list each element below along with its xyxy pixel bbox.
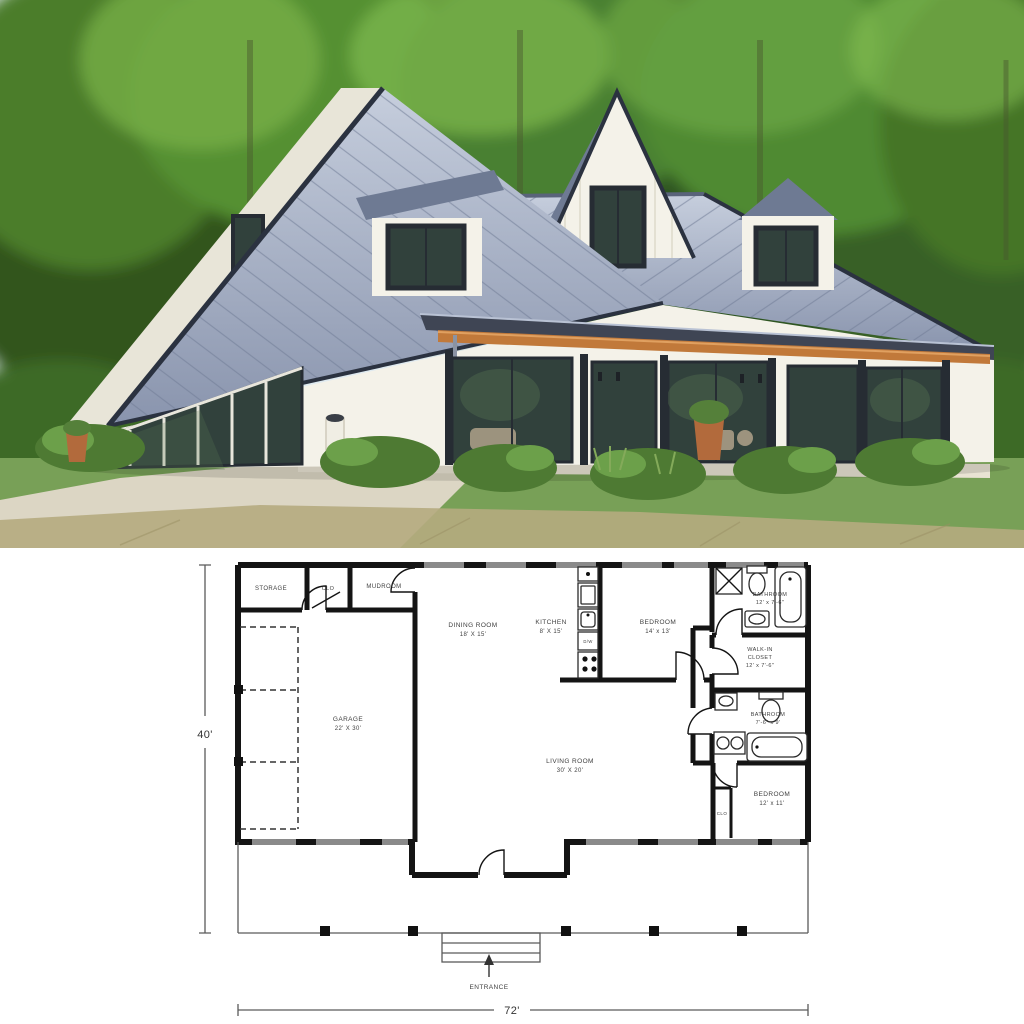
house-photo: [0, 0, 1024, 548]
kitchen-appliances: D/W: [578, 567, 598, 678]
porch-plant-pot: [694, 420, 724, 460]
svg-text:8' X 15': 8' X 15': [540, 629, 563, 635]
svg-text:DINING ROOM: DINING ROOM: [448, 622, 497, 629]
pedestal-cap: [326, 414, 344, 422]
svg-text:LIVING ROOM: LIVING ROOM: [546, 758, 594, 765]
svg-text:KITCHEN: KITCHEN: [535, 619, 566, 626]
terracotta-pot: [66, 432, 88, 462]
room-label-storage: STORAGE: [255, 586, 287, 592]
room-label-clo1: CLO: [322, 586, 335, 592]
toilet2-tank-icon: [759, 692, 783, 699]
svg-text:30' X 20': 30' X 20': [557, 768, 584, 774]
svg-text:BEDROOM: BEDROOM: [754, 791, 790, 798]
svg-text:22' X 30': 22' X 30': [335, 726, 362, 732]
svg-text:12' x 7'-6": 12' x 7'-6": [746, 663, 774, 669]
dim-72-label: 72': [504, 1005, 520, 1017]
svg-text:7'-6" x 9': 7'-6" x 9': [756, 720, 781, 726]
dishwasher-label: D/W: [583, 639, 592, 644]
svg-text:WALK-IN: WALK-IN: [747, 647, 773, 653]
svg-text:12' x 7'-6": 12' x 7'-6": [756, 600, 784, 606]
svg-text:BATHROOM: BATHROOM: [753, 592, 788, 598]
svg-text:18' X 15': 18' X 15': [460, 632, 487, 638]
dim-40-label: 40': [197, 729, 213, 741]
svg-text:GARAGE: GARAGE: [333, 716, 363, 723]
room-label-walkin: WALK-IN CLOSET 12' x 7'-6": [746, 647, 774, 669]
svg-text:14' x 13': 14' x 13': [645, 629, 671, 635]
svg-text:12' x 11': 12' x 11': [759, 801, 784, 807]
page: D/W: [0, 0, 1024, 1024]
entrance-label: ENTRANCE: [470, 984, 509, 991]
svg-text:BATHROOM: BATHROOM: [751, 712, 786, 718]
svg-text:BEDROOM: BEDROOM: [640, 619, 676, 626]
stove-icon: [578, 652, 598, 678]
toilet2-icon: [762, 700, 780, 722]
floor-plan: D/W: [0, 548, 1024, 1024]
toilet-tank-icon: [747, 566, 767, 573]
room-label-mudroom: MUDROOM: [366, 584, 401, 590]
room-label-clo2: CLO: [717, 811, 728, 816]
svg-text:CLOSET: CLOSET: [748, 655, 773, 661]
